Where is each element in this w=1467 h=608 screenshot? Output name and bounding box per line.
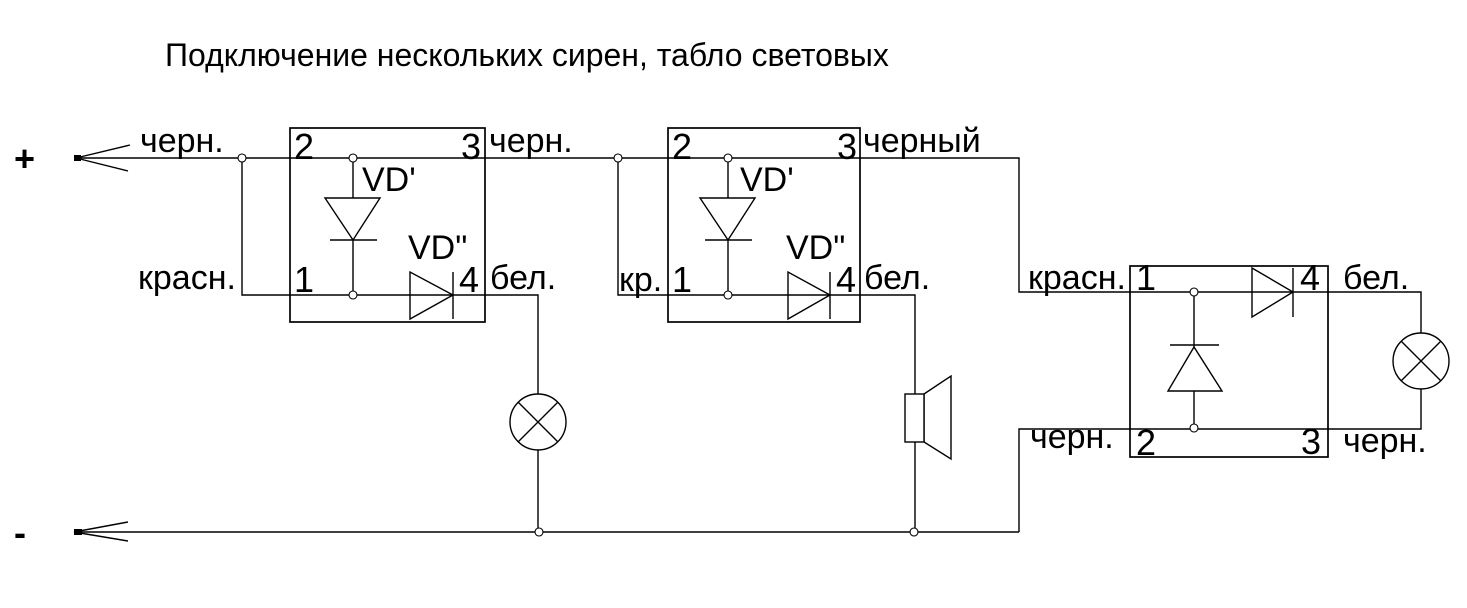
junction-module-1-bottom (349, 291, 357, 299)
module-2-diode-vertical-label: VD' (740, 161, 794, 199)
junction-module-2-bottom (724, 291, 732, 299)
module-1-black-out-label: черн. (489, 122, 573, 160)
junction-module-3-bottom (1190, 424, 1198, 432)
junction-plus-tap-1 (238, 154, 246, 162)
module-1-box (290, 128, 485, 322)
plus-wire-color-label: черн. (140, 122, 224, 160)
module-2-box (668, 128, 860, 322)
module-3-pin-3: 3 (1301, 421, 1321, 462)
junction-plus-tap-2 (614, 154, 622, 162)
module-2-pin-4: 4 (836, 259, 856, 300)
module-1-red-wire-label: красн. (138, 259, 236, 297)
module-3-pin-4: 4 (1300, 257, 1320, 298)
module-3-return-wire (1019, 389, 1421, 532)
module-1-diode-vertical-label: VD' (362, 161, 416, 199)
minus-terminal-label: - (14, 512, 26, 553)
plus-terminal-label: + (14, 138, 35, 179)
module-3-white-out-label: бел. (1343, 259, 1409, 297)
module-3-pin-1: 1 (1136, 257, 1156, 298)
junction-minus-speaker (910, 528, 918, 536)
wire-junctions (238, 154, 1198, 536)
module-1-pin-3: 3 (461, 126, 481, 167)
diagram-title: Подключение нескольких сирен, табло свет… (165, 37, 889, 73)
junction-minus-lamp-1 (535, 528, 543, 536)
wiring-diagram-canvas: Подключение нескольких сирен, табло свет… (0, 0, 1467, 608)
module-1-white-out-label: бел. (490, 259, 556, 297)
module-2-red-wire-label: кр. (619, 261, 662, 299)
lamp-2-icon (1393, 333, 1449, 389)
module-2-black-out-label: черный (863, 122, 981, 160)
module-3-black-out-label: черн. (1343, 422, 1427, 460)
lamp-1-icon (510, 394, 566, 450)
minus-arrow-tip (74, 529, 82, 535)
module-2-pin-3: 3 (837, 126, 857, 167)
module-1-pin-2: 2 (294, 126, 314, 167)
module-1-pin-1: 1 (294, 259, 314, 300)
siren-speaker-icon (905, 376, 951, 459)
module-2: VD' VD" 2 3 1 4 кр. черный бел. (619, 122, 981, 322)
module-3-pin-2: 2 (1136, 422, 1156, 463)
module-3: 1 4 2 3 красн. черн. бел. черн. (1028, 257, 1427, 463)
plus-arrow-tip (74, 155, 81, 161)
junction-module-1-top (349, 154, 357, 162)
junction-module-2-top (724, 154, 732, 162)
module-1-pin-4: 4 (459, 259, 479, 300)
module-2-pin-2: 2 (672, 126, 692, 167)
module-3-black-in-label: черн. (1030, 418, 1114, 456)
module-3-red-in-label: красн. (1028, 259, 1126, 297)
module-2-pin-1: 1 (672, 259, 692, 300)
module-2-white-out-label: бел. (864, 259, 930, 297)
module-3-diode-vertical-icon (1168, 292, 1222, 428)
power-terminals: + - черн. (14, 122, 224, 553)
junction-module-3-top (1190, 288, 1198, 296)
schematic-page: Подключение нескольких сирен, табло свет… (0, 0, 1467, 608)
